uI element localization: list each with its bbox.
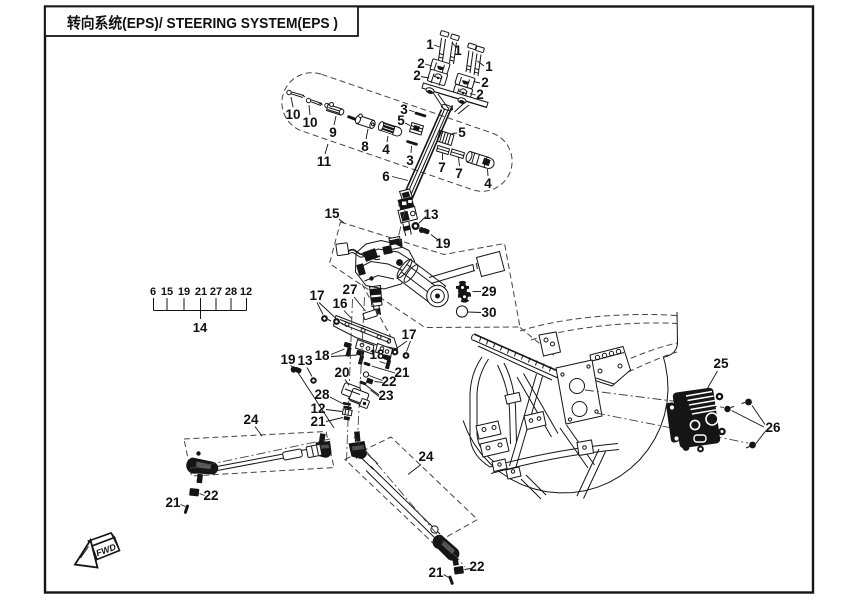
svg-text:10: 10 [285,107,300,122]
svg-text:5: 5 [458,125,466,140]
svg-text:20: 20 [334,365,349,380]
svg-text:21: 21 [310,414,326,429]
svg-text:1: 1 [454,43,462,58]
svg-text:22: 22 [203,488,218,503]
svg-text:21: 21 [428,565,444,580]
svg-text:21: 21 [195,286,207,298]
svg-text:24: 24 [243,412,259,427]
svg-text:30: 30 [481,305,496,320]
svg-text:21: 21 [165,495,181,510]
svg-text:17: 17 [309,288,324,303]
svg-text:16: 16 [332,296,348,311]
svg-text:8: 8 [361,139,369,154]
svg-text:19: 19 [280,352,295,367]
svg-text:13: 13 [297,353,313,368]
svg-text:19: 19 [178,286,190,298]
svg-text:转向系统(EPS)/ STEERING SYSTEM(EPS: 转向系统(EPS)/ STEERING SYSTEM(EPS ) [67,14,338,32]
svg-text:27: 27 [342,282,357,297]
svg-text:4: 4 [382,142,390,157]
svg-text:13: 13 [423,207,439,222]
svg-text:28: 28 [314,387,330,402]
svg-text:22: 22 [469,559,484,574]
svg-text:24: 24 [418,449,434,464]
svg-text:10: 10 [302,115,317,130]
svg-text:1: 1 [485,59,493,74]
svg-text:6: 6 [382,169,390,184]
svg-text:7: 7 [455,166,463,181]
svg-text:15: 15 [161,286,173,298]
svg-text:18: 18 [369,347,385,362]
svg-text:17: 17 [401,327,416,342]
svg-text:28: 28 [225,286,237,298]
svg-text:5: 5 [397,113,405,128]
svg-text:27: 27 [210,286,222,298]
svg-text:7: 7 [438,160,446,175]
svg-text:14: 14 [193,320,208,335]
svg-text:29: 29 [481,284,496,299]
svg-text:26: 26 [765,420,781,435]
svg-text:23: 23 [378,388,394,403]
svg-text:15: 15 [324,206,340,221]
svg-text:9: 9 [329,125,337,140]
svg-text:18: 18 [314,348,330,363]
svg-text:21: 21 [394,365,410,380]
svg-text:25: 25 [713,356,729,371]
svg-text:4: 4 [484,176,492,191]
svg-text:1: 1 [426,37,434,52]
svg-text:19: 19 [435,236,450,251]
svg-text:22: 22 [381,374,396,389]
svg-text:2: 2 [413,68,421,83]
svg-text:12: 12 [240,286,252,298]
svg-text:6: 6 [150,286,156,298]
svg-text:11: 11 [317,154,332,169]
svg-text:3: 3 [406,153,414,168]
